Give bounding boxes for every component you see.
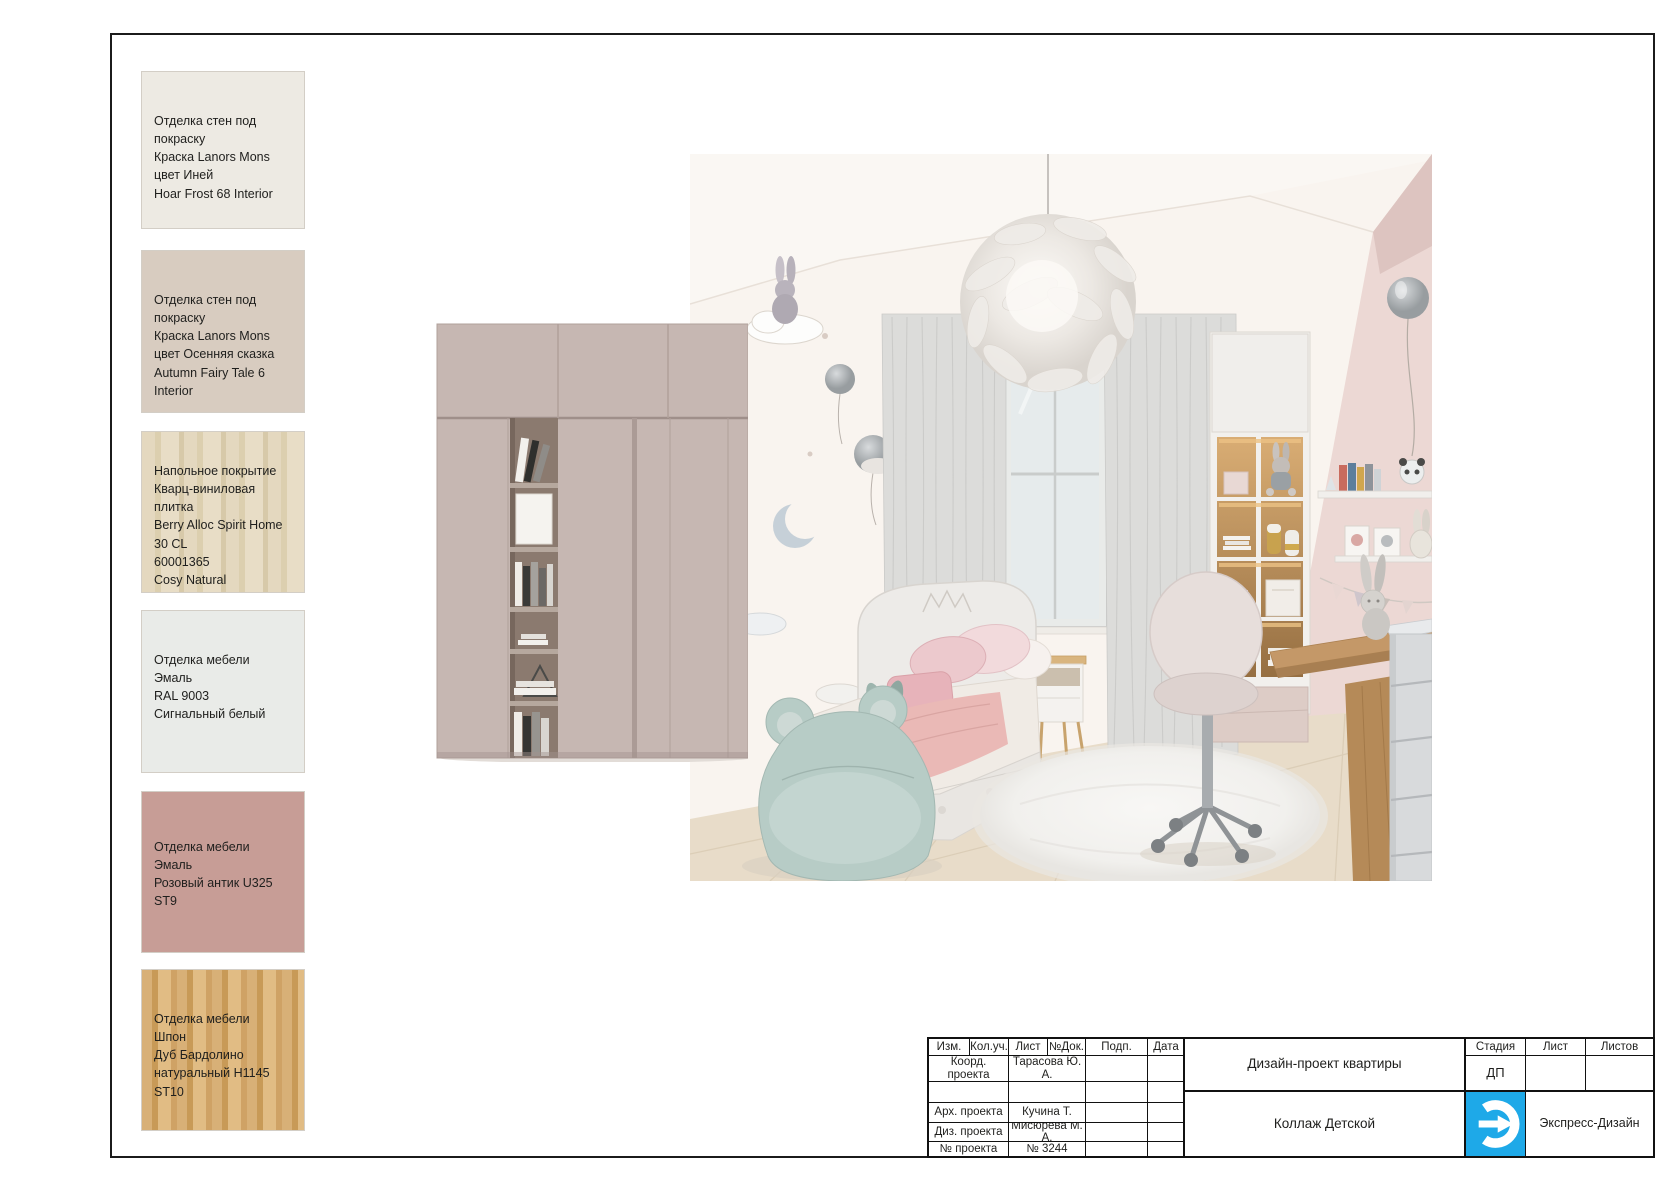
sheet-title: Коллаж Детской	[1185, 1092, 1464, 1156]
company-name: Экспресс-Дизайн	[1526, 1092, 1653, 1156]
tb-row-value	[1009, 1082, 1086, 1103]
title-block: Изм. Кол.уч. Лист №Док. Подп. Дата Коорд…	[927, 1037, 1655, 1158]
material-label: Отделка стен под покраскуКраска Lanors M…	[142, 72, 304, 203]
tb-header-sheets: Листов	[1586, 1039, 1653, 1056]
sheets-total-cell	[1586, 1056, 1653, 1090]
tb-date-cell	[1148, 1056, 1185, 1082]
material-label: Отделка мебелиЭмаль Розовый антик U325 S…	[142, 792, 304, 911]
tb-header-list: Лист	[1009, 1039, 1048, 1056]
stage-value: ДП	[1466, 1056, 1526, 1090]
material-label: Отделка стен под покраскуКраска Lanors M…	[142, 251, 304, 400]
tb-signature-cell	[1086, 1123, 1148, 1142]
tb-row-value: Мисюрева М. А.	[1009, 1123, 1086, 1142]
tb-row-label	[929, 1082, 1009, 1103]
express-design-logo-icon	[1470, 1098, 1522, 1150]
wardrobe-photo	[400, 300, 748, 762]
tb-header-stage: Стадия	[1466, 1039, 1526, 1056]
company-logo	[1466, 1092, 1526, 1156]
tb-row-value: № 3244	[1009, 1142, 1086, 1156]
material-label: Отделка мебелиЭмаль RAL 9003Сигнальный б…	[142, 611, 304, 724]
project-title: Дизайн-проект квартиры	[1185, 1039, 1464, 1090]
tb-header-koluch: Кол.уч.	[970, 1039, 1009, 1056]
dresser	[1385, 619, 1432, 881]
material-swatch-enamel-white: Отделка мебелиЭмаль RAL 9003Сигнальный б…	[141, 610, 305, 773]
tb-signature-cell	[1086, 1103, 1148, 1123]
design-project-sheet: { "sheet": { "frame_color": "#1b1b1b", "…	[0, 0, 1680, 1187]
tb-header-izm: Изм.	[929, 1039, 970, 1056]
tb-signature-cell	[1086, 1056, 1148, 1082]
wardrobe	[437, 324, 748, 762]
tb-date-cell	[1148, 1103, 1185, 1123]
tb-header-sheet: Лист	[1526, 1039, 1586, 1056]
tb-date-cell	[1148, 1142, 1185, 1156]
tb-date-cell	[1148, 1082, 1185, 1103]
material-swatch-wall-paint-autumn: Отделка стен под покраскуКраска Lanors M…	[141, 250, 305, 413]
tb-date-cell	[1148, 1123, 1185, 1142]
tb-row-value: Тарасова Ю. А.	[1009, 1056, 1086, 1082]
tb-row-label: Арх. проекта	[929, 1103, 1009, 1123]
material-swatch-wall-paint-frost: Отделка стен под покраскуКраска Lanors M…	[141, 71, 305, 229]
tb-header-ndok: №Док.	[1048, 1039, 1086, 1056]
material-label: Напольное покрытиеКварц-виниловая плитка…	[142, 432, 304, 589]
tb-row-label: Диз. проекта	[929, 1123, 1009, 1142]
tb-row-value: Кучина Т.	[1009, 1103, 1086, 1123]
tb-signature-cell	[1086, 1082, 1148, 1103]
tb-row-label: Коорд. проекта	[929, 1056, 1009, 1082]
tb-signature-cell	[1086, 1142, 1148, 1156]
tb-header-data: Дата	[1148, 1039, 1185, 1056]
material-swatch-enamel-pink: Отделка мебелиЭмаль Розовый антик U325 S…	[141, 791, 305, 953]
material-label: Отделка мебелиШпон Дуб Бардолинонатураль…	[142, 970, 304, 1101]
sheet-number-cell	[1526, 1056, 1586, 1090]
material-swatch-floor-vinyl: Напольное покрытиеКварц-виниловая плитка…	[141, 431, 305, 593]
tb-row-label: № проекта	[929, 1142, 1009, 1156]
children-room-collage	[690, 154, 1432, 881]
tb-header-podp: Подп.	[1086, 1039, 1148, 1056]
material-swatch-veneer-oak: Отделка мебелиШпон Дуб Бардолинонатураль…	[141, 969, 305, 1131]
